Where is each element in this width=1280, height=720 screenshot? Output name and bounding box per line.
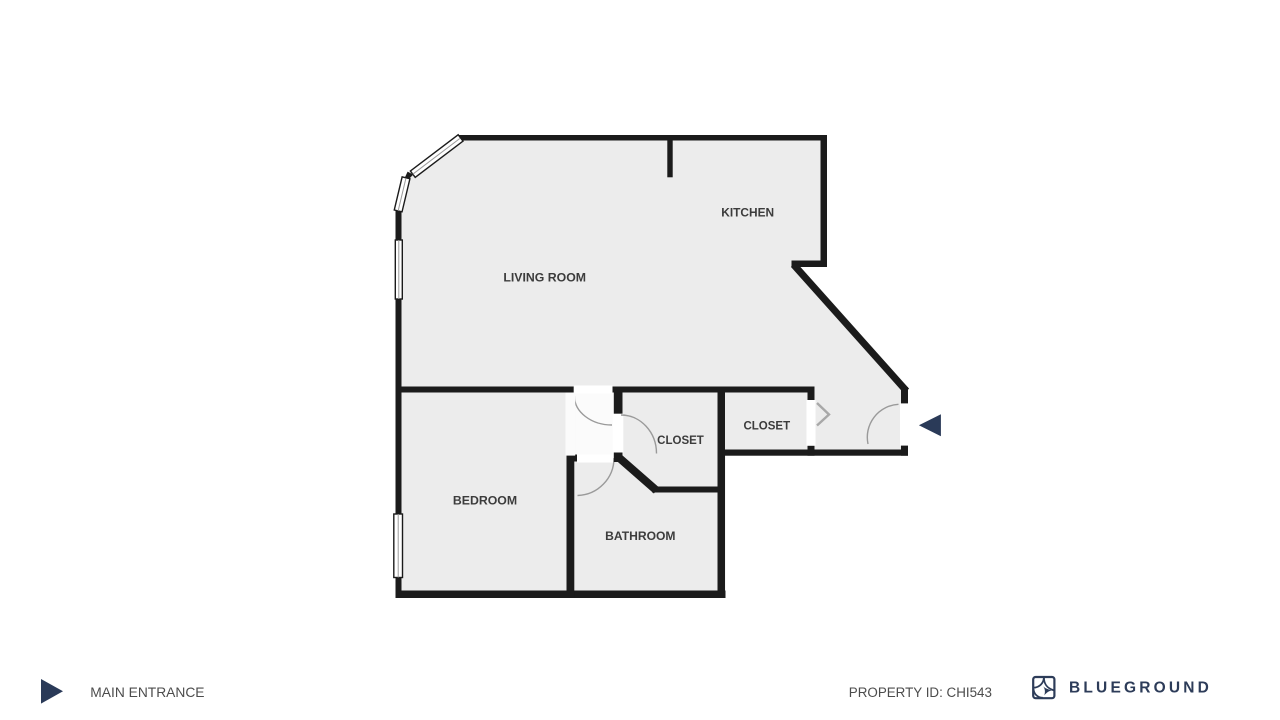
svg-text:BATHROOM: BATHROOM bbox=[605, 529, 675, 543]
svg-text:BEDROOM: BEDROOM bbox=[453, 494, 517, 508]
svg-text:CLOSET: CLOSET bbox=[743, 421, 790, 433]
svg-text:MAIN ENTRANCE: MAIN ENTRANCE bbox=[90, 685, 204, 700]
svg-text:BLUEGROUND: BLUEGROUND bbox=[1069, 680, 1212, 697]
svg-text:LIVING ROOM: LIVING ROOM bbox=[503, 271, 586, 285]
svg-text:CLOSET: CLOSET bbox=[657, 435, 704, 447]
svg-text:PROPERTY ID: CHI543: PROPERTY ID: CHI543 bbox=[849, 685, 992, 700]
svg-text:KITCHEN: KITCHEN bbox=[721, 206, 774, 220]
